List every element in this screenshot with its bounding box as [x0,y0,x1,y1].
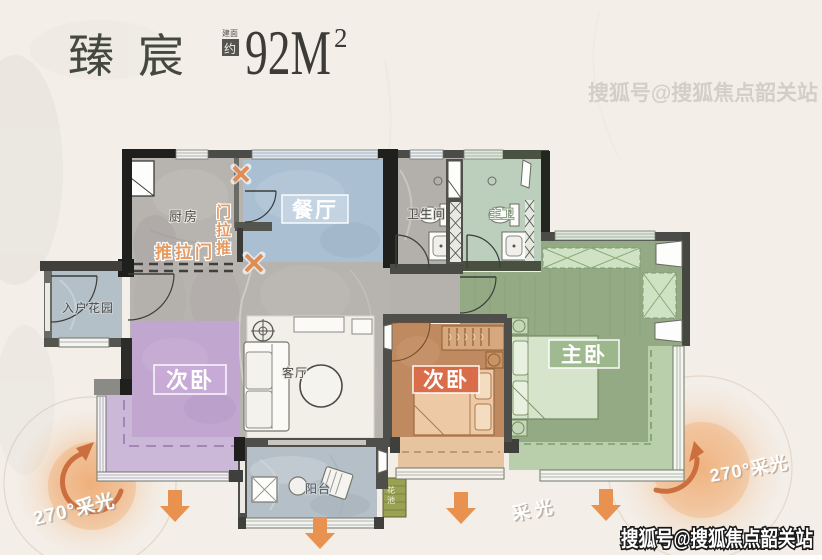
svg-text:厨房: 厨房 [169,209,199,224]
svg-text:客厅: 客厅 [282,365,308,380]
svg-text:建面: 建面 [222,28,238,38]
svg-text:次卧: 次卧 [423,368,469,392]
svg-text:门: 门 [216,203,231,221]
svg-text:阳台: 阳台 [305,481,331,496]
svg-text:入户花园: 入户花园 [62,300,114,315]
svg-text:臻宸: 臻宸 [68,31,208,82]
svg-text:池: 池 [387,495,395,505]
svg-text:拉: 拉 [216,221,231,239]
svg-text:主卧: 主卧 [561,344,607,367]
svg-text:约: 约 [224,41,236,56]
svg-text:2: 2 [334,23,348,53]
svg-text:92M: 92M [245,17,331,88]
svg-text:推: 推 [216,239,231,257]
svg-text:搜狐号@搜狐焦点韶关站: 搜狐号@搜狐焦点韶关站 [621,527,813,551]
svg-text:次卧: 次卧 [166,368,214,393]
svg-text:餐厅: 餐厅 [292,198,338,222]
svg-text:花: 花 [387,485,395,495]
svg-text:搜狐号@搜狐焦点韶关站: 搜狐号@搜狐焦点韶关站 [588,81,818,105]
svg-text:推拉门: 推拉门 [155,242,215,262]
svg-text:卫生间: 卫生间 [407,207,446,221]
svg-text:主卫: 主卫 [489,207,515,221]
